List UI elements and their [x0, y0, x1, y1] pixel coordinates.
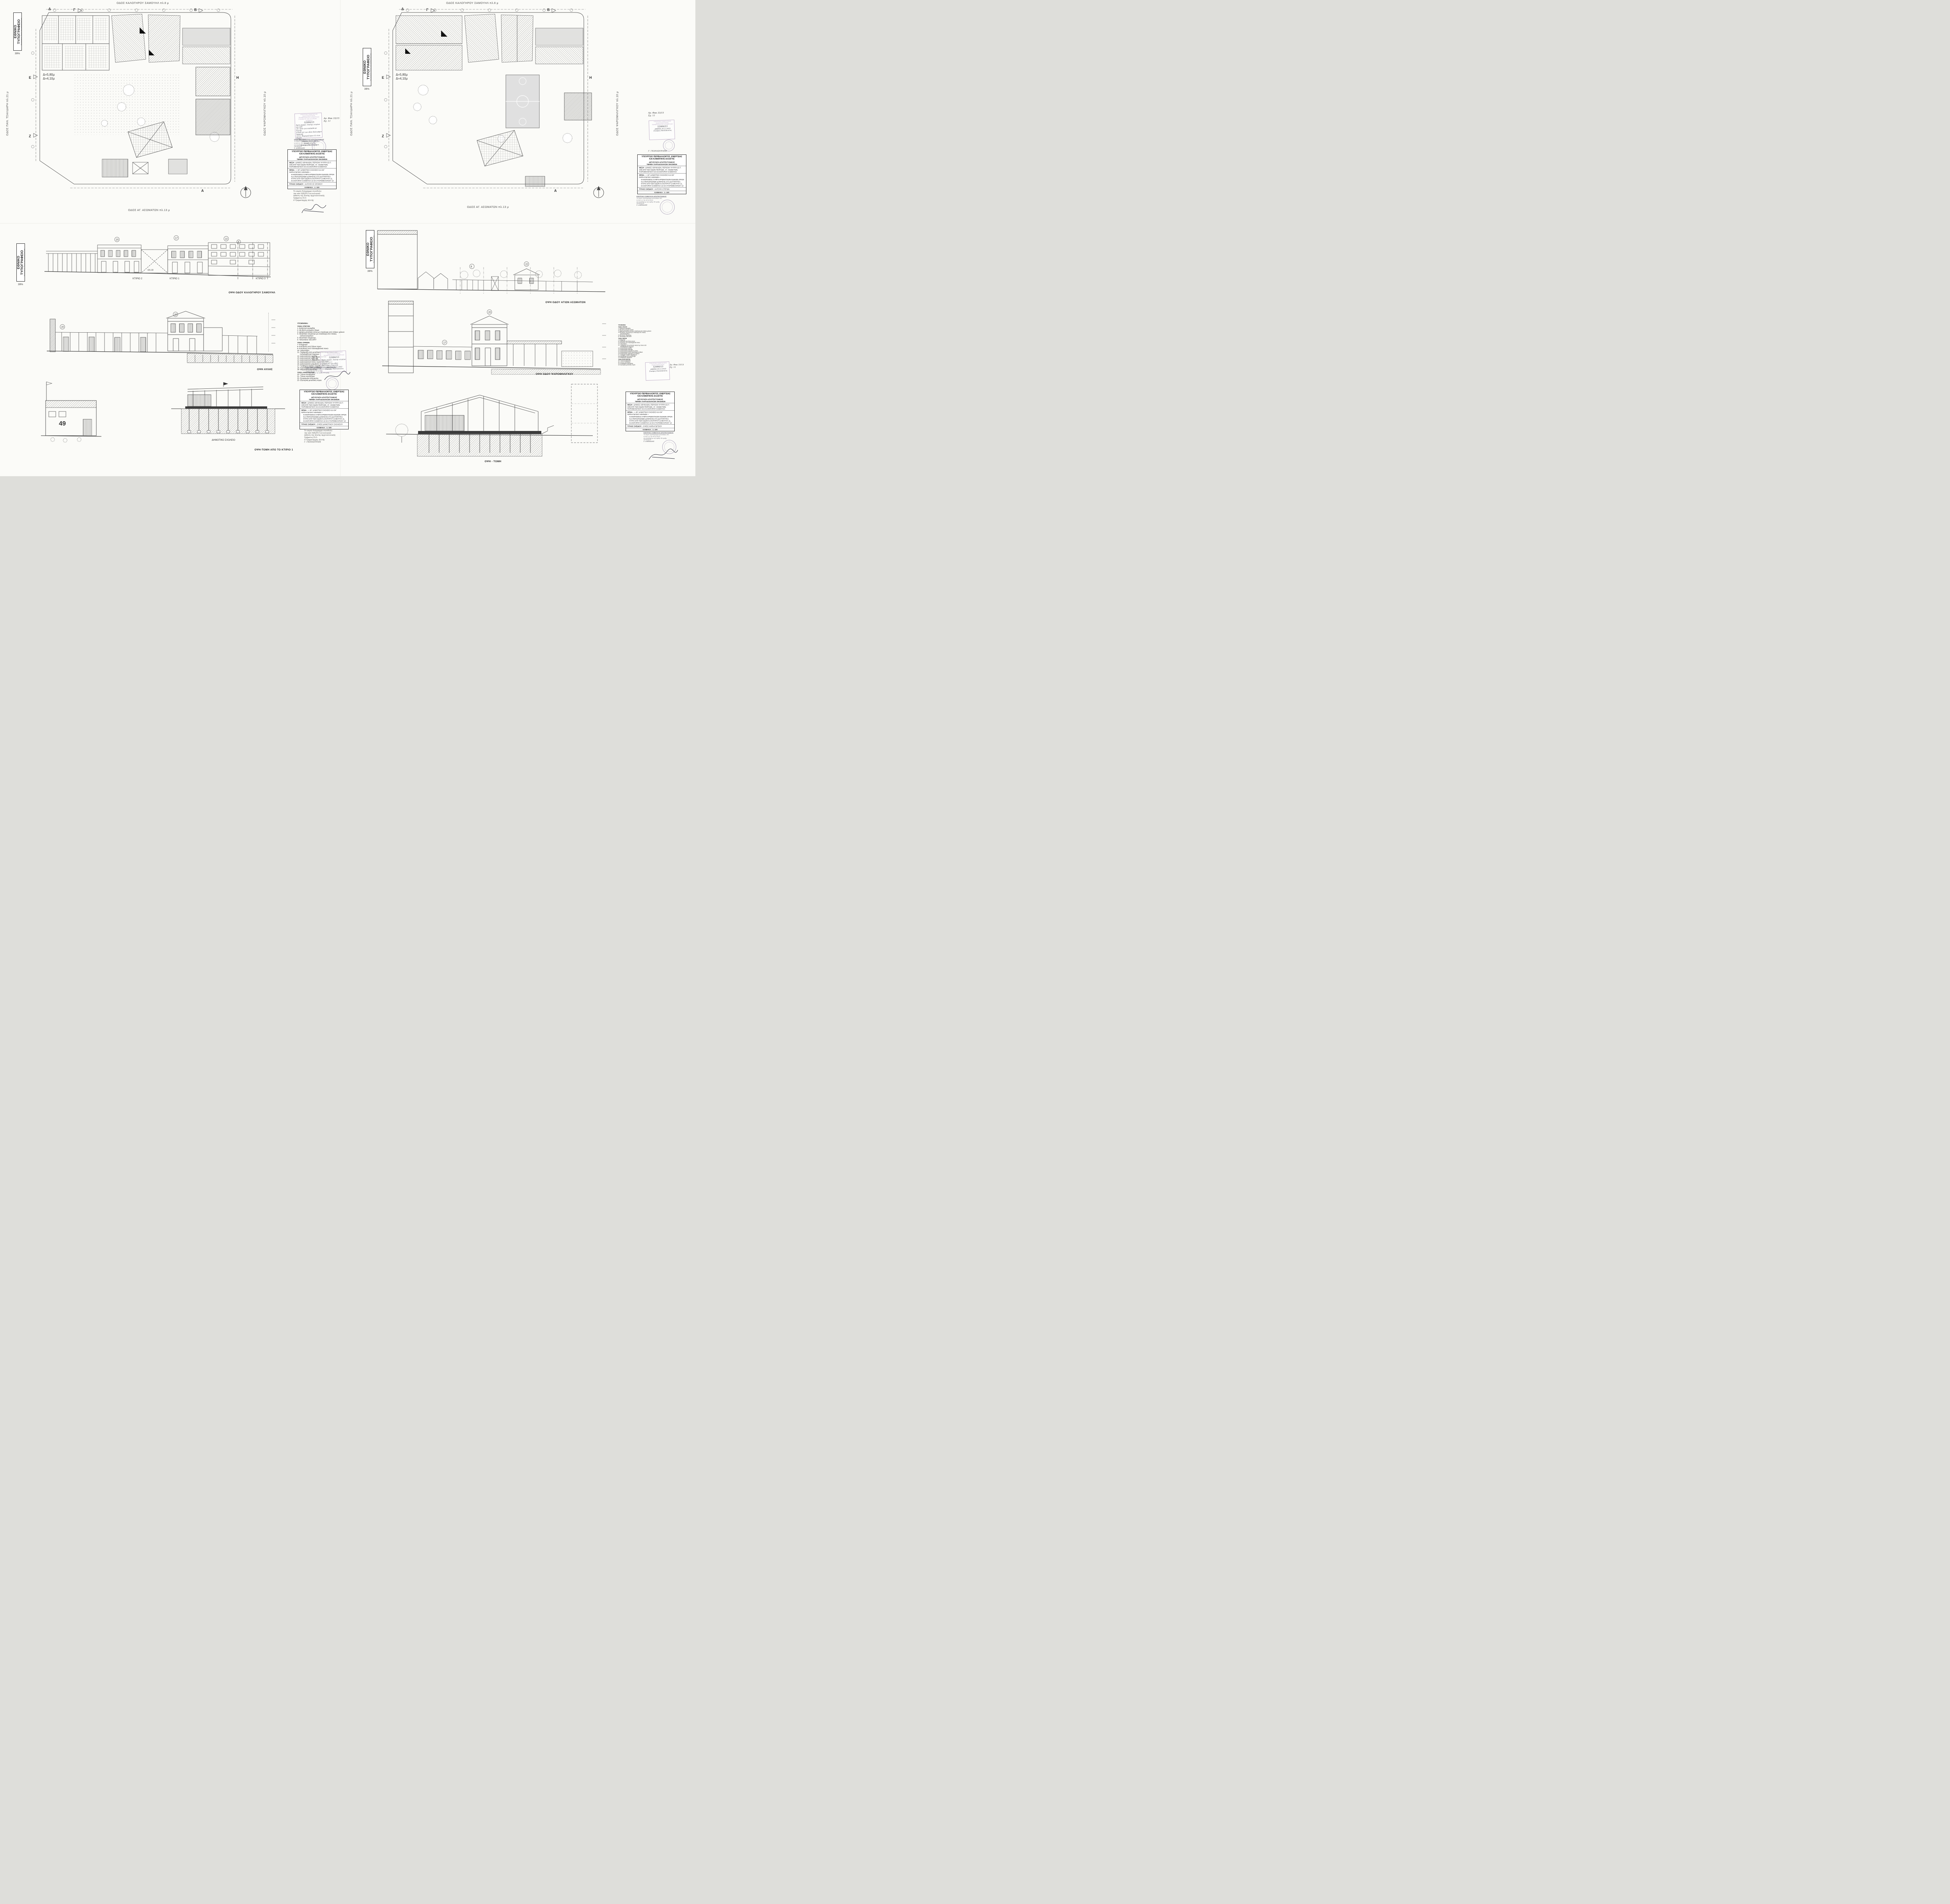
foundation-piles	[181, 409, 275, 434]
approval-stamp: ΥΠΟΥΡΓΕΙΟ ΠΑΡΑΓΩΓΙΚΗΣ ΑΝΑΣΥΓΚΡΟΤΗΣΗΣ, ΠΕ…	[649, 120, 675, 140]
national-press-stamp: ΕΘΝΙΚΟ ΤΥΠΟΓΡΑΦΕΙΟ Για τεχνικούς λόγους …	[366, 231, 374, 268]
svg-text:Γ: Γ	[426, 8, 429, 12]
material-ref-bubbles	[442, 310, 492, 345]
level-note-2: Δ=4,10μ	[43, 77, 55, 80]
street-label-top: ΟΔΟΣ ΚΑΛΟΓΗΡΟΥ ΣΑΜΟΥΗΛ πλ.8 μ	[92, 2, 193, 5]
department-name: ΔΙΕΥΘΥΝΣΗ ΑΡΧΙΤΕΚΤΟΝΙΚΗΣ ΤΜΗΜΑ ΠΑΡΑΔΟΣΙΑ…	[289, 156, 335, 160]
subject-row: ΘΕΜΑ : « 49° ΔΗΜΟΤΙΚΟ ΣΧΟΛΕΙΟ ΚΑΙ 84° ΝΗ…	[289, 169, 335, 182]
signature-squiggle	[300, 203, 328, 216]
superstructure	[188, 382, 263, 406]
site-plan-roof: Δ=5,80μ Δ=4,10μ Γ Β Ε Ζ Η Α Δ	[365, 6, 610, 209]
svg-text:8: 8	[471, 266, 472, 268]
caption-elevation-1: ΟΨΗ ΟΔΟΥ ΚΑΛΟΓΗΡΟΥ ΣΑΜΟΥΗΛ	[213, 291, 291, 294]
elevation-agion-asomaton: 8 22	[374, 228, 608, 294]
reduction-percent: 39%	[367, 270, 372, 273]
svg-text:Η: Η	[589, 76, 592, 80]
section-letter-epsilon: Ε	[29, 76, 31, 80]
underground-section	[187, 353, 273, 363]
sheet-roof-plan: ΕΘΝΙΚΟ ΤΥΠΟΓΡΑΦΕΙΟ Για τεχνικούς λόγους …	[340, 0, 695, 223]
tree	[395, 424, 408, 443]
section-cut-wall	[50, 319, 55, 352]
svg-text:22: 22	[525, 264, 528, 266]
legend-item: 6- Υαλοστάσιο SECURIT	[297, 339, 347, 341]
signer-name: Γ. ΓΚΑΝΑΣΟΥΛΗΣ	[304, 441, 343, 443]
gable-outlines	[418, 272, 448, 289]
stair	[541, 425, 554, 434]
scale-row: ΚΛΙΜΑΚΑ : 1: 100	[289, 186, 335, 188]
second-facade	[168, 246, 208, 273]
elevation-courtyard: 20 22	[39, 304, 281, 369]
legend-item: 6- Υαλοστάσιο SECURIT	[618, 336, 652, 337]
title-block-floor-plan: ΥΠΟΥΡΓΕΙΟ ΠΕΡΙΒΑΛΛΟΝΤΟΣ, ΕΝΕΡΓΕΙΑΣ ΚΑΙ Κ…	[287, 149, 337, 189]
roof-truss	[421, 395, 538, 431]
street-label-left: ΟΔΟΣ ΠΑΝ. ΤΣΑΛΔΑΡΗ πλ.21 μ	[350, 92, 353, 136]
party-wall-x	[141, 250, 168, 273]
stairs-and-ramps	[102, 159, 187, 177]
round-seal	[660, 200, 675, 215]
facade-number-49: 49	[37, 377, 103, 447]
caption-section: ΟΨΗ - ΤΟΜΗ	[458, 460, 528, 463]
roof-hatch-areas	[112, 14, 230, 64]
caption-section-1: ΟΨΗ-ΤΟΜΗ ΑΠΟ ΤΟ ΚΤΙΡΙΟ 1	[243, 449, 305, 451]
bushes	[51, 438, 81, 442]
building-colonnade	[46, 251, 97, 272]
scanned-architectural-sheet: ΕΘΝΙΚΟ ΤΥΠΟΓΡΑΦΕΙΟ Για τεχνικούς λόγους …	[0, 0, 695, 476]
house-number: 49	[59, 420, 66, 427]
street-label-bottom: ΟΔΟΣ ΑΓ. ΑΣΩΜΑΤΩΝ πλ.13 μ	[98, 209, 200, 212]
floor-slab	[418, 431, 541, 434]
svg-text:17: 17	[443, 342, 446, 344]
courtyard-fence	[452, 277, 593, 291]
section-building-1: ΔΗΜΟΤΙΚΟ ΣΧΟΛΕΙΟ	[166, 379, 291, 449]
svg-text:8: 8	[238, 241, 239, 244]
level-note-1: Δ=5,80μ	[396, 73, 408, 76]
sheet-school-elevations: ΕΘΝΙΚΟ ΤΥΠΟΓΡΑΦΕΙΟ Για τεχνικούς λόγους …	[0, 223, 356, 476]
building-label-3: ΚΤΙΡΙΟ 3	[256, 278, 266, 280]
title-block-roof-plan: ΥΠΟΥΡΓΕΙΟ ΠΕΡΙΒΑΛΛΟΝΤΟΣ, ΕΝΕΡΓΕΙΑΣ ΚΑΙ Κ…	[637, 154, 686, 194]
svg-text:Β: Β	[547, 8, 550, 12]
svg-text:Δ: Δ	[401, 7, 404, 11]
signer-name: Γ. ΓΚΑΝΑΣΟΥΛΗΣ	[648, 150, 687, 152]
section-letter-delta: Δ	[48, 7, 51, 11]
school-building-plan	[42, 16, 109, 70]
svg-text:17: 17	[175, 238, 178, 240]
drawing-title: ΚΑΤΟΨΗ Β' ΟΡΟΦΟΥ	[305, 183, 323, 185]
pergola-wing	[507, 341, 562, 366]
right-wall-posts	[222, 335, 257, 354]
svg-text:20: 20	[116, 239, 119, 241]
neoclassical-house	[166, 311, 222, 351]
stairs-and-ramps	[525, 176, 545, 186]
north-arrow	[241, 186, 251, 198]
hatched-terrace-blocks	[564, 93, 592, 120]
section-kindergarten	[374, 384, 608, 462]
level-note-1: Δ=5,80μ	[43, 73, 55, 76]
drawing-title: ΚΑΤΟΨΗ ΣΤΕΓΩΝ	[655, 188, 670, 190]
round-seal	[326, 378, 339, 390]
svg-text:22: 22	[225, 238, 228, 241]
svg-text:Ζ: Ζ	[382, 134, 384, 138]
reduction-percent: 39%	[18, 283, 23, 286]
sheet-kindergarten-elevations: ΕΘΝΙΚΟ ΤΥΠΟΓΡΑΦΕΙΟ Για τεχνικούς λόγους …	[340, 223, 695, 476]
level-note-2: Δ=4,10μ	[396, 77, 408, 80]
floor-slab	[185, 406, 267, 409]
building-label-2: ΚΤΙΡΙΟ 2	[133, 278, 142, 280]
trees	[413, 85, 572, 143]
material-ref-bubbles	[60, 312, 178, 329]
material-ref-bubbles	[470, 262, 529, 269]
site-plan-floor: Δ=5,80μ Δ=4,10μ Γ Β Ε Ζ Η Α Δ	[12, 6, 257, 209]
modern-block	[208, 243, 270, 280]
svg-text:20: 20	[488, 312, 491, 314]
file-refs: Αρ. Φακ 33/15 Σχ. 11	[670, 363, 695, 374]
approval-stamp: ΥΠΟΥΡΓΕΙΟ ΠΑΡΑΓΩΓΙΚΗΣ ΑΝΑΣΥΓΚΡΟΤΗΣΗΣ, 52…	[645, 362, 670, 381]
tall-party-wall	[378, 230, 417, 289]
kesa-approval: ΚΕΝΤΡΙΚΟ ΣΥΜΒΟΥΛΙΟ ΑΡΧΙΤΕΚΤΟΝΙΚΗΣ Το παρ…	[306, 367, 345, 384]
level-ticks	[602, 324, 606, 359]
street-label-right: ΟΔΟΣ ΨΑΡΟΜΗΛΙΓΚΟΥ πλ.10 μ	[264, 91, 266, 136]
svg-text:Α: Α	[554, 189, 557, 193]
elevation-psaromiligkou: 20 17	[374, 300, 608, 376]
caption-row2-levels	[268, 313, 273, 352]
section-letter-gamma: Γ	[73, 8, 76, 12]
legend-item: 19- Μαρμάρινα φορούσια	[618, 357, 652, 358]
neoclassical-house	[470, 316, 509, 366]
roof-hatch-areas	[396, 14, 583, 70]
svg-text:Ε: Ε	[382, 76, 384, 80]
hatched-terrace-blocks	[196, 67, 230, 135]
end-wall	[562, 351, 593, 367]
drawing-title: ΟΨΕΙΣ ΝΗΠΙΑΓΩΓΕΙΟΥ	[643, 425, 662, 427]
sheet-floor-plan: ΕΘΝΙΚΟ ΤΥΠΟΓΡΑΦΕΙΟ Για τεχνικούς λόγους …	[0, 0, 340, 223]
svg-text:20: 20	[61, 326, 64, 329]
title-block-kindergarten-elevations: ΥΠΟΥΡΓΕΙΟ ΠΕΡΙΒΑΛΛΟΝΤΟΣ, ΕΝΕΡΓΕΙΑΣ ΚΑΙ Κ…	[626, 392, 675, 431]
street-label-left: ΟΔΟΣ ΠΑΝ. ΤΣΑΛΔΑΡΗ πλ.21 μ	[6, 92, 9, 136]
section-letter-alpha: Α	[201, 189, 204, 193]
pergola-canopy	[477, 130, 523, 166]
section-letter-beta: Β	[194, 8, 197, 12]
drawing-title-row: ΤΙΤΛΟΣ ΣΧΕΔΙΟΥ : ΚΑΤΟΨΗ Β' ΟΡΟΦΟΥ	[289, 183, 335, 185]
elevation-kalogirou-samouil: 101.33 20 17 22 8 ΚΤΙΡΙΟ 2 ΚΤΙΡΙΟ	[39, 234, 273, 281]
north-arrow	[594, 186, 604, 198]
neoclassical-facade	[97, 245, 141, 273]
street-label-top: ΟΔΟΣ ΚΑΛΟΓΗΡΟΥ ΣΑΜΟΥΗΛ πλ.8 μ	[422, 2, 523, 5]
ministry-name: ΥΠΟΥΡΓΕΙΟ ΠΕΡΙΒΑΛΛΟΝΤΟΣ, ΕΝΕΡΓΕΙΑΣ ΚΑΙ Κ…	[289, 151, 335, 155]
section-letter-eta: Η	[236, 76, 239, 80]
adjacent-building-outline	[571, 384, 597, 443]
basketball-court	[506, 75, 539, 128]
legend-title: ΥΠΟΜΝΗΜΑ:	[297, 323, 347, 324]
national-press-stamp: ΕΘΝΙΚΟ ΤΥΠΟΓΡΑΦΕΙΟ Για τεχνικούς λόγους …	[16, 244, 25, 282]
svg-text:22: 22	[174, 314, 177, 316]
building-use-label: ΔΗΜΟΤΙΚΟ ΣΧΟΛΕΙΟ	[212, 439, 235, 441]
level-value: 101.33	[147, 269, 154, 271]
legend-roof-materials: 1- Βυζαντινά κεραμίδια2- Μη βατό μονωμέν…	[297, 327, 347, 341]
foundation-piles	[417, 434, 542, 456]
tall-building	[388, 301, 413, 373]
building-label-1: ΚΤΙΡΙΟ 1	[170, 278, 179, 280]
street-label-right: ΟΔΟΣ ΨΑΡΟΜΗΛΙΓΚΟΥ πλ.10 μ	[616, 91, 619, 136]
signature-squiggle	[647, 448, 679, 462]
low-wing	[413, 346, 472, 360]
low-wing-openings	[55, 332, 168, 352]
approval-stamp: ΥΠΟΥΡΓΕΙΟ ΠΑΡΑΓΩΓΙΚΗΣ ΑΝΑΣΥΓΚΡΟΤΗΣΗΣ, ΠΕ…	[294, 113, 323, 138]
location-row: ΘΕΣΗ : ΔΗΜΟΣ ΑΘΗΝΑΙΩΝ, ΠΕΡΙΟΧΗ ΨΥΡΡΗ (Ο.…	[289, 162, 335, 168]
section-letter-zeta: Ζ	[29, 134, 31, 138]
small-house	[513, 269, 540, 290]
caption-elevation-2: ΟΨΗ ΟΔΟΥ ΨΑΡΟΜΗΛΙΓΚΟΥ	[519, 373, 590, 376]
caption-elevation-2: ΟΨΗ ΑΥΛΗΣ	[238, 368, 292, 371]
drawing-title: ΟΨΕΙΣ ΔΗΜΟΤΙΚΟΥ ΣΧΟΛΕΙΟΥ	[317, 424, 343, 425]
